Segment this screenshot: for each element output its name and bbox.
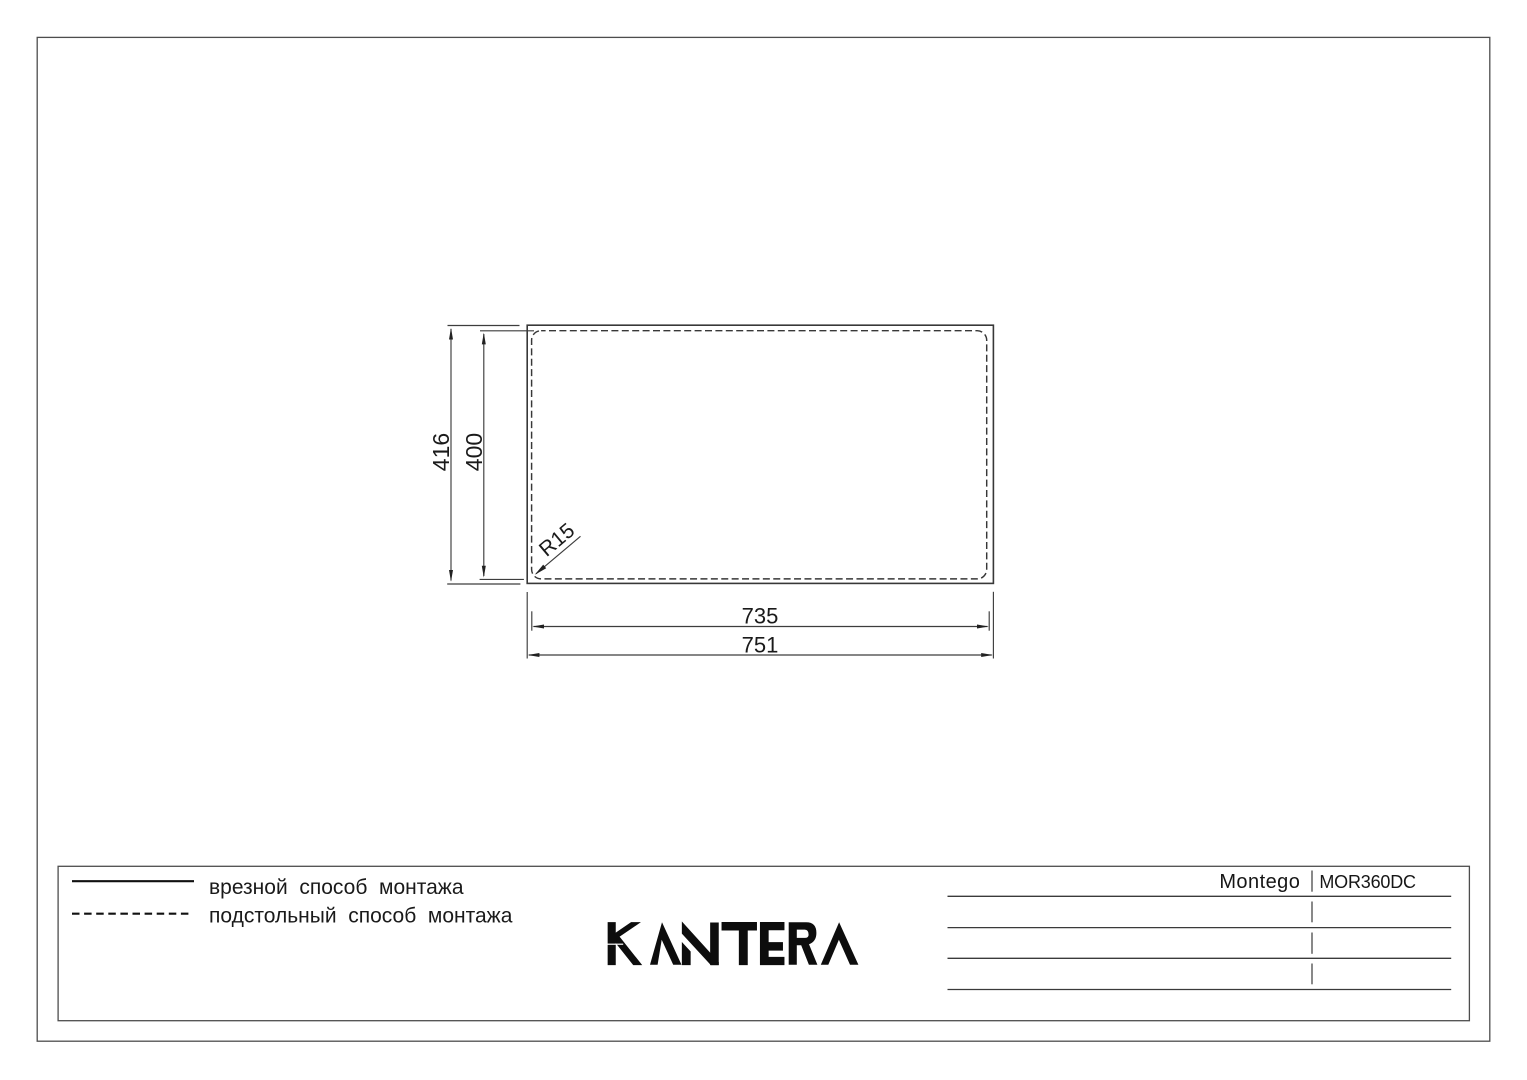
svg-text:416: 416 bbox=[428, 433, 454, 471]
svg-text:751: 751 bbox=[742, 632, 779, 657]
svg-text:R15: R15 bbox=[535, 519, 579, 561]
svg-text:MOR360DC: MOR360DC bbox=[1319, 872, 1416, 892]
svg-text:врезной способ монтажа: врезной способ монтажа bbox=[209, 876, 464, 899]
svg-text:400: 400 bbox=[461, 433, 487, 471]
svg-text:735: 735 bbox=[742, 604, 779, 629]
svg-text:подстольный способ монтажа: подстольный способ монтажа bbox=[209, 905, 513, 928]
svg-text:Montego: Montego bbox=[1219, 871, 1300, 893]
